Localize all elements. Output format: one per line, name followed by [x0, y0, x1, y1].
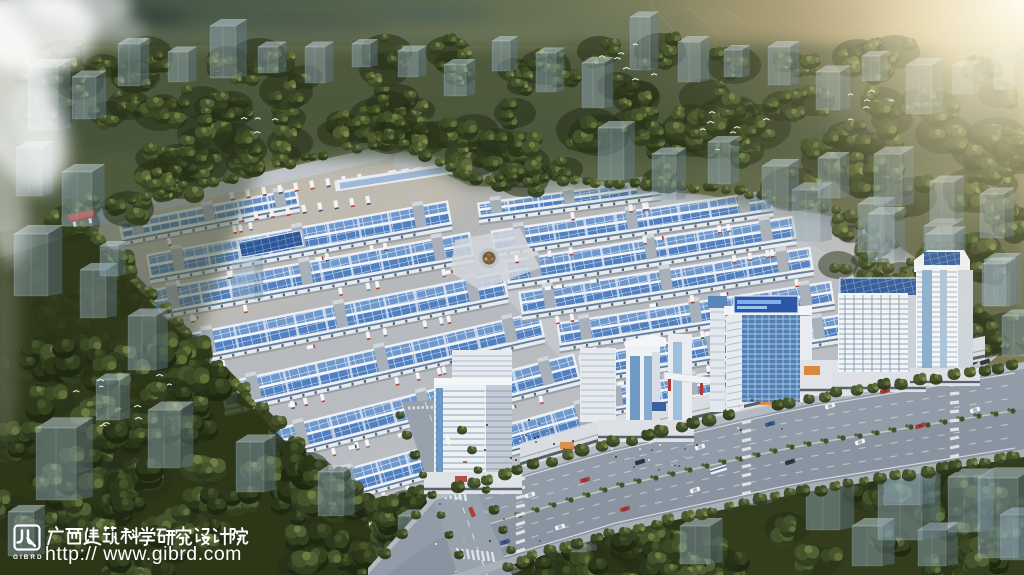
svg-text:GIBRD: GIBRD: [13, 554, 44, 561]
svg-text:http:// www.gibrd.com: http:// www.gibrd.com: [45, 543, 242, 565]
